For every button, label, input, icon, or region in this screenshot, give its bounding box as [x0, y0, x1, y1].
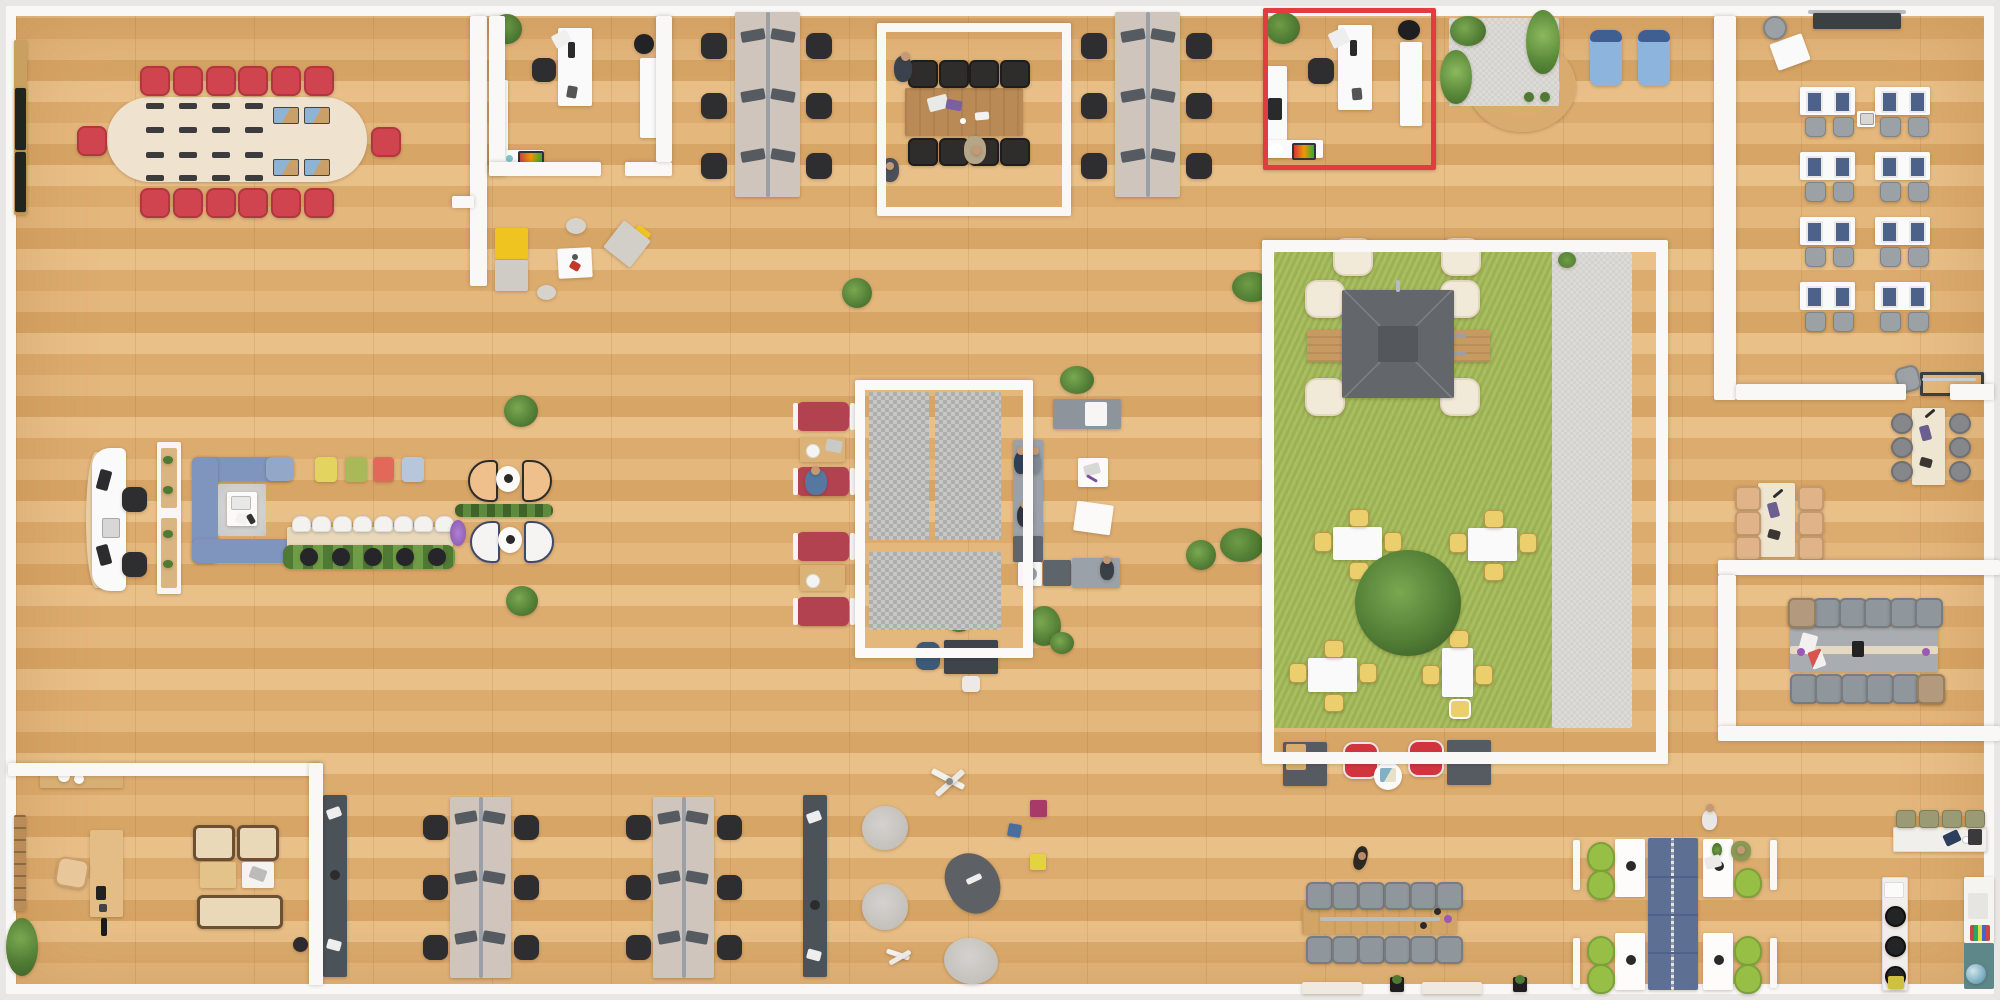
- conference-chair: [1866, 674, 1894, 704]
- boardroom-screen: [15, 152, 26, 212]
- bench-chair: [423, 815, 448, 840]
- bistro-plate: [504, 474, 513, 483]
- office-desk-monitor: [568, 42, 575, 58]
- bar-appliance: [1968, 829, 1982, 845]
- office-teal-cup: [506, 155, 513, 162]
- desk-bench-spine: [479, 797, 483, 978]
- bench-chair: [806, 33, 832, 59]
- classroom-monitor: [1806, 91, 1823, 113]
- floor-bush: [842, 278, 872, 308]
- bar-stool-olive: [1919, 810, 1939, 828]
- reception-printer: [102, 518, 120, 538]
- wall-exec-office-right: [309, 763, 323, 985]
- planter-stool-black: [364, 548, 382, 566]
- classroom-monitor: [1881, 221, 1898, 243]
- hedge: [455, 504, 553, 517]
- boardroom-notepad: [146, 127, 164, 133]
- reception-chair: [122, 487, 147, 512]
- boardroom-monitor: [304, 159, 330, 176]
- cube-gray: [495, 260, 528, 291]
- daybed-pillow: [1638, 30, 1670, 42]
- cafe-booth-seam: [1648, 876, 1698, 878]
- classroom-chair: [1908, 182, 1929, 202]
- bench-chair: [626, 875, 651, 900]
- cafe-booth-seam: [1648, 914, 1698, 916]
- classroom-chair: [1833, 117, 1854, 137]
- boardroom-chair-red: [304, 188, 334, 218]
- reception-chair: [122, 552, 147, 577]
- classroom-chair: [1833, 312, 1854, 332]
- office-desk-gear: [566, 85, 578, 99]
- sofa-red: [797, 532, 849, 561]
- boardroom-chair-red: [271, 188, 301, 218]
- wall-classroom-bottom-b: [1950, 384, 1994, 400]
- wall-planter-plant: [1515, 975, 1525, 984]
- kitchen-books: [1970, 925, 1990, 941]
- bench-chair: [701, 33, 727, 59]
- pouf-blue: [402, 457, 424, 482]
- classroom-monitor: [1834, 91, 1851, 113]
- classroom-monitor: [1806, 221, 1823, 243]
- boardroom-notepad: [245, 127, 263, 133]
- cafe-chair-green: [1734, 868, 1762, 898]
- stool-gray: [1949, 461, 1971, 482]
- exec-candle: [101, 918, 107, 936]
- bar-stool-olive: [1896, 810, 1916, 828]
- conference-chair-tan: [1917, 674, 1945, 704]
- wall-cafe-panel-2: [1573, 938, 1580, 988]
- boardroom-chair-red: [77, 126, 107, 156]
- table-plate: [806, 574, 820, 588]
- bar-stool-white: [353, 516, 372, 532]
- cube-lime: [1030, 854, 1046, 870]
- table-dot: [1434, 908, 1441, 915]
- boardroom-notepad: [146, 103, 164, 109]
- table-laptop: [825, 439, 843, 454]
- cafe-chair-green: [1587, 964, 1615, 994]
- chair-tan: [1798, 536, 1824, 561]
- wall-cafe-panel-3: [1770, 840, 1777, 890]
- boardroom-notepad: [212, 127, 230, 133]
- table-laptop: [231, 496, 251, 510]
- classroom-chair: [1908, 312, 1929, 332]
- bar-stool-white: [414, 516, 433, 532]
- bar-box: [1884, 882, 1904, 898]
- planter-bush: [1220, 528, 1264, 562]
- wall-conference-top: [1718, 560, 2000, 575]
- classroom-chair: [1908, 117, 1929, 137]
- exec-plant: [6, 918, 38, 976]
- desk-bench-spine: [1146, 12, 1150, 197]
- classroom-chair: [1805, 182, 1826, 202]
- classroom-screen: [1813, 13, 1901, 29]
- bench-chair: [701, 153, 727, 179]
- classroom-chair: [1880, 117, 1901, 137]
- chair-gray: [1358, 936, 1385, 964]
- sofa-blue-ext: [266, 457, 294, 481]
- shelf-wood: [161, 518, 177, 588]
- bench-chair: [514, 935, 539, 960]
- boardroom-screen: [15, 88, 26, 150]
- boardroom-notepad: [245, 175, 263, 181]
- wall-meeting-room-ring: [877, 23, 1071, 216]
- pouf-coral: [373, 457, 394, 482]
- bar-stool-white: [312, 516, 331, 532]
- exec-armchair: [237, 825, 279, 861]
- desk-bench-spine: [766, 12, 770, 197]
- wall-classroom-bottom-a: [1736, 384, 1906, 400]
- chair-gray: [1332, 882, 1359, 910]
- wall-boardroom-right: [470, 16, 487, 286]
- classroom-monitor: [1834, 221, 1851, 243]
- table-ball-purple: [1444, 915, 1452, 923]
- classroom-monitor: [1881, 156, 1898, 178]
- boardroom-notepad: [179, 127, 197, 133]
- pouf-green: [345, 457, 367, 482]
- globe: [1966, 964, 1986, 984]
- wall-office-bottom-b: [625, 162, 672, 176]
- wall-office-right: [656, 16, 672, 162]
- cafe-plate: [1626, 955, 1636, 965]
- person-head: [1103, 556, 1111, 564]
- atrium-frame: [855, 380, 1033, 658]
- conference-chair: [1790, 674, 1818, 704]
- chair-gray: [1410, 882, 1437, 910]
- bench-chair: [1186, 93, 1212, 119]
- conference-chair: [1815, 674, 1843, 704]
- stool-round: [566, 218, 586, 234]
- bistro-plate: [506, 535, 515, 544]
- classroom-chair: [1805, 247, 1826, 267]
- bench-chair: [423, 875, 448, 900]
- chair-gray: [1306, 882, 1333, 910]
- conference-chair: [1813, 598, 1841, 628]
- sofa-red-cap: [793, 598, 798, 625]
- planter-stool-black: [428, 548, 446, 566]
- chair-gray: [1358, 882, 1385, 910]
- bar-stool-white: [292, 516, 311, 532]
- shelf-plant: [163, 560, 173, 568]
- boardroom-chair-red: [140, 188, 170, 218]
- boardroom-notepad: [179, 103, 197, 109]
- chair-tan: [1798, 486, 1824, 511]
- cafe-chair-green: [1587, 870, 1615, 900]
- panel-pin-dark: [330, 870, 340, 880]
- conference-ball-purple: [1797, 648, 1805, 656]
- wall-counter: [1302, 982, 1362, 994]
- classroom-chair: [1805, 117, 1826, 137]
- bench-chair: [626, 815, 651, 840]
- wall-planter-plant: [1392, 975, 1402, 984]
- person-head: [1706, 804, 1714, 812]
- chair-gray: [1436, 936, 1463, 964]
- boardroom-chair-red: [371, 127, 401, 157]
- classroom-chair: [1833, 247, 1854, 267]
- classroom-monitor: [1834, 156, 1851, 178]
- exec-chair: [54, 855, 91, 890]
- cafe-plate: [1626, 861, 1636, 871]
- classroom-monitor: [1881, 91, 1898, 113]
- classroom-monitor: [1909, 156, 1926, 178]
- garden-pot: [1524, 92, 1534, 102]
- classroom-printer: [1860, 113, 1874, 125]
- garden-plant: [1450, 16, 1486, 46]
- conference-chair: [1839, 598, 1867, 628]
- conference-chair: [1864, 598, 1892, 628]
- sofa-red-cap: [793, 403, 798, 430]
- classroom-monitor: [1909, 91, 1926, 113]
- bench-chair: [717, 935, 742, 960]
- chair-tan: [1735, 511, 1761, 536]
- bar-stool-black: [1885, 936, 1906, 957]
- pouf-yellow: [315, 457, 337, 482]
- exec-desk-gear: [99, 904, 107, 912]
- boardroom-notepad: [179, 152, 197, 158]
- person-head: [1737, 846, 1745, 854]
- wall-conference-bottom: [1718, 726, 2000, 741]
- conference-chair: [1841, 674, 1869, 704]
- conference-chair: [1915, 598, 1943, 628]
- planter-stool-black: [332, 548, 350, 566]
- bench-chair: [701, 93, 727, 119]
- bench-chair: [717, 875, 742, 900]
- person-body: [1702, 810, 1717, 830]
- sofa-blue-bottom: [192, 539, 292, 563]
- bench-chair: [626, 935, 651, 960]
- classroom-chair: [1805, 312, 1826, 332]
- wall-cafe-panel-1: [1573, 840, 1580, 890]
- exec-stool: [293, 937, 308, 952]
- exec-bookcase: [14, 815, 26, 911]
- wall-courtyard-ring: [1262, 240, 1668, 764]
- shelf-plant: [163, 530, 173, 538]
- bench-chair: [1186, 33, 1212, 59]
- planter-stool-black: [300, 548, 318, 566]
- bench-chair: [423, 935, 448, 960]
- bar-stool-olive: [1965, 810, 1985, 828]
- classroom-chair: [1833, 182, 1854, 202]
- chair-gray: [1384, 882, 1411, 910]
- boardroom-notepad: [212, 103, 230, 109]
- office-round-chair: [634, 34, 654, 54]
- bar-crate-yellow: [1888, 976, 1904, 989]
- classroom-chair: [1880, 247, 1901, 267]
- boardroom-chair-red: [173, 66, 203, 96]
- chair-gray: [1332, 936, 1359, 964]
- classroom-bench-top: [1922, 378, 1976, 381]
- bench-chair: [514, 815, 539, 840]
- chair-tan: [1735, 536, 1761, 561]
- bench-chair: [1081, 93, 1107, 119]
- boardroom-notepad: [212, 175, 230, 181]
- exec-desk-gear: [96, 886, 106, 900]
- cafe-chair-green: [1587, 936, 1615, 966]
- boardroom-notepad: [179, 175, 197, 181]
- kitchen-sink: [1968, 893, 1988, 919]
- table-dot: [572, 254, 578, 260]
- stool-gray: [1891, 437, 1913, 458]
- bench-chair: [514, 875, 539, 900]
- cafe-booth-seam: [1648, 952, 1698, 954]
- boardroom-chair-red: [304, 66, 334, 96]
- boardroom-chair-red: [206, 66, 236, 96]
- classroom-monitor: [1881, 286, 1898, 308]
- bar-stool-white: [333, 516, 352, 532]
- exec-sofa: [197, 895, 283, 929]
- panel-pin-dark: [810, 900, 820, 910]
- chair-gray: [1306, 936, 1333, 964]
- conference-chair: [1890, 598, 1918, 628]
- floor-bush: [504, 395, 538, 427]
- person-head: [1358, 852, 1366, 860]
- wall-office-bottom-a: [489, 162, 601, 176]
- bar-stool-white: [374, 516, 393, 532]
- garden-palm: [1526, 10, 1560, 74]
- classroom-monitor: [1909, 286, 1926, 308]
- wall-boardroom-stub: [452, 196, 474, 208]
- wall-red-office-ring: [1263, 8, 1436, 170]
- table-dot: [1420, 922, 1427, 929]
- bar-stool-black: [1885, 906, 1906, 927]
- bench-chair: [1186, 153, 1212, 179]
- wall-cafe-panel-4: [1770, 938, 1777, 988]
- boardroom-notepad: [146, 175, 164, 181]
- standing-table: [1912, 408, 1945, 485]
- bar-stool-olive: [1942, 810, 1962, 828]
- sofa-red-cap: [793, 468, 798, 495]
- bench-chair: [717, 815, 742, 840]
- cafe-plate: [1714, 955, 1724, 965]
- classroom-chair: [1880, 182, 1901, 202]
- sofa-red: [797, 597, 849, 626]
- chair-tan: [1798, 511, 1824, 536]
- classroom-chair: [1880, 312, 1901, 332]
- cafe-chair-green: [1734, 936, 1762, 966]
- boardroom-chair-red: [173, 188, 203, 218]
- floor-bush: [1186, 540, 1216, 570]
- classroom-monitor: [1806, 286, 1823, 308]
- bench-chair: [1081, 33, 1107, 59]
- cube-yellow: [495, 228, 528, 259]
- stool-gray: [1891, 413, 1913, 434]
- bench-chair: [1081, 153, 1107, 179]
- sectional-bench-dark: [1043, 560, 1071, 586]
- classroom-monitor: [1909, 221, 1926, 243]
- cafe-chair-green: [1587, 842, 1615, 872]
- chair-tan: [1735, 486, 1761, 511]
- boardroom-notepad: [245, 152, 263, 158]
- pinwheel-hub: [946, 778, 953, 785]
- pouf-gray: [862, 884, 908, 930]
- office-floor-plan: [0, 0, 2000, 1000]
- flowers-purple: [450, 520, 466, 546]
- table-plate: [806, 444, 820, 458]
- chair-gray: [1410, 936, 1437, 964]
- planter-stool-black: [396, 548, 414, 566]
- classroom-monitor: [1834, 286, 1851, 308]
- atrium-plant: [1050, 632, 1074, 654]
- side-table-white: [1073, 501, 1114, 536]
- stool-gray: [1949, 413, 1971, 434]
- desk-bench-spine: [682, 797, 686, 978]
- instructor-chair: [1763, 16, 1787, 40]
- conference-chair: [1892, 674, 1920, 704]
- stool-gray: [1949, 437, 1971, 458]
- conference-ball-purple: [1922, 648, 1930, 656]
- shelf-plant: [163, 456, 173, 464]
- floor-bush: [506, 586, 538, 616]
- sectional-table-white: [1085, 402, 1107, 426]
- coffee-table-map: [1380, 768, 1396, 782]
- cube-blue: [1007, 823, 1022, 838]
- boardroom-chair-red: [206, 188, 236, 218]
- stool-gray: [1891, 461, 1913, 482]
- cube-magenta: [1030, 800, 1047, 817]
- wall-exec-office-top: [8, 763, 322, 776]
- conference-calculator: [1852, 641, 1864, 657]
- chair-gray: [1384, 936, 1411, 964]
- garden-pot: [1540, 92, 1550, 102]
- cafe-chair-green: [1734, 964, 1762, 994]
- boardroom-notepad: [212, 152, 230, 158]
- atrium-chair-white: [962, 676, 980, 692]
- classroom-chair: [1908, 247, 1929, 267]
- boardroom-chair-red: [140, 66, 170, 96]
- wall-conference-left: [1718, 575, 1736, 727]
- boardroom-chair-red: [238, 66, 268, 96]
- chair-gray: [1436, 882, 1463, 910]
- sofa-red-cap: [793, 533, 798, 560]
- shelf-plant: [163, 486, 173, 494]
- boardroom-notepad: [146, 152, 164, 158]
- boardroom-monitor: [304, 107, 330, 124]
- conference-chair-tan: [1788, 598, 1816, 628]
- boardroom-monitor: [273, 107, 299, 124]
- boardroom-notepad: [245, 103, 263, 109]
- boardroom-chair-red: [238, 188, 268, 218]
- stool-round: [537, 285, 556, 300]
- atrium-plant: [1060, 366, 1094, 394]
- garden-palm: [1440, 50, 1472, 104]
- bar-stool-white: [394, 516, 413, 532]
- bench-chair: [806, 93, 832, 119]
- wall-counter: [1422, 982, 1482, 994]
- wall-classroom-left: [1714, 16, 1736, 400]
- long-table-rail: [1320, 917, 1440, 921]
- classroom-monitor: [1806, 156, 1823, 178]
- person-head: [811, 466, 820, 475]
- boardroom-monitor: [273, 159, 299, 176]
- exec-armchair: [193, 825, 235, 861]
- exec-coffee-table: [200, 862, 236, 888]
- daybed-pillow: [1590, 30, 1622, 42]
- wall-office-left: [489, 16, 505, 176]
- sofa-red: [797, 402, 849, 431]
- bench-chair: [806, 153, 832, 179]
- office-chair: [532, 58, 556, 82]
- boardroom-chair-red: [271, 66, 301, 96]
